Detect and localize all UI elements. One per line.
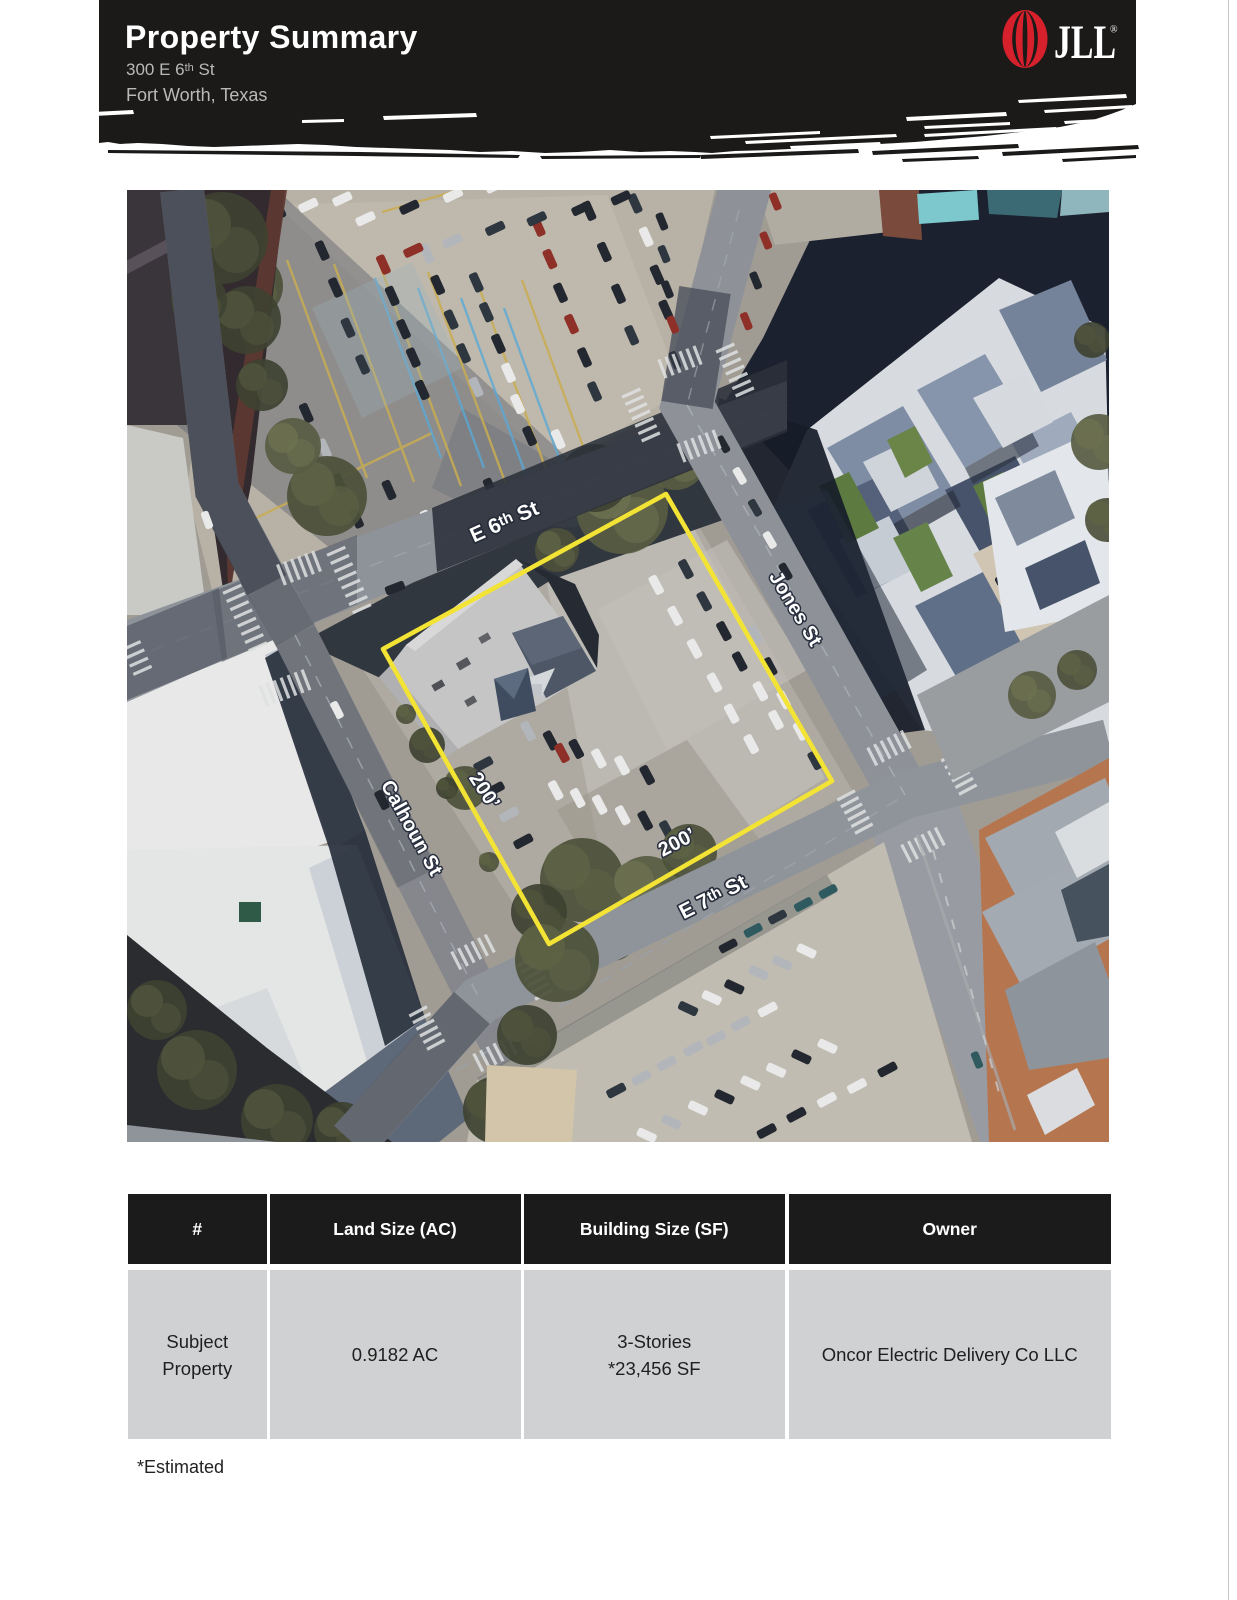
- svg-text:®: ®: [1110, 25, 1118, 36]
- svg-text:JLL: JLL: [1054, 16, 1116, 69]
